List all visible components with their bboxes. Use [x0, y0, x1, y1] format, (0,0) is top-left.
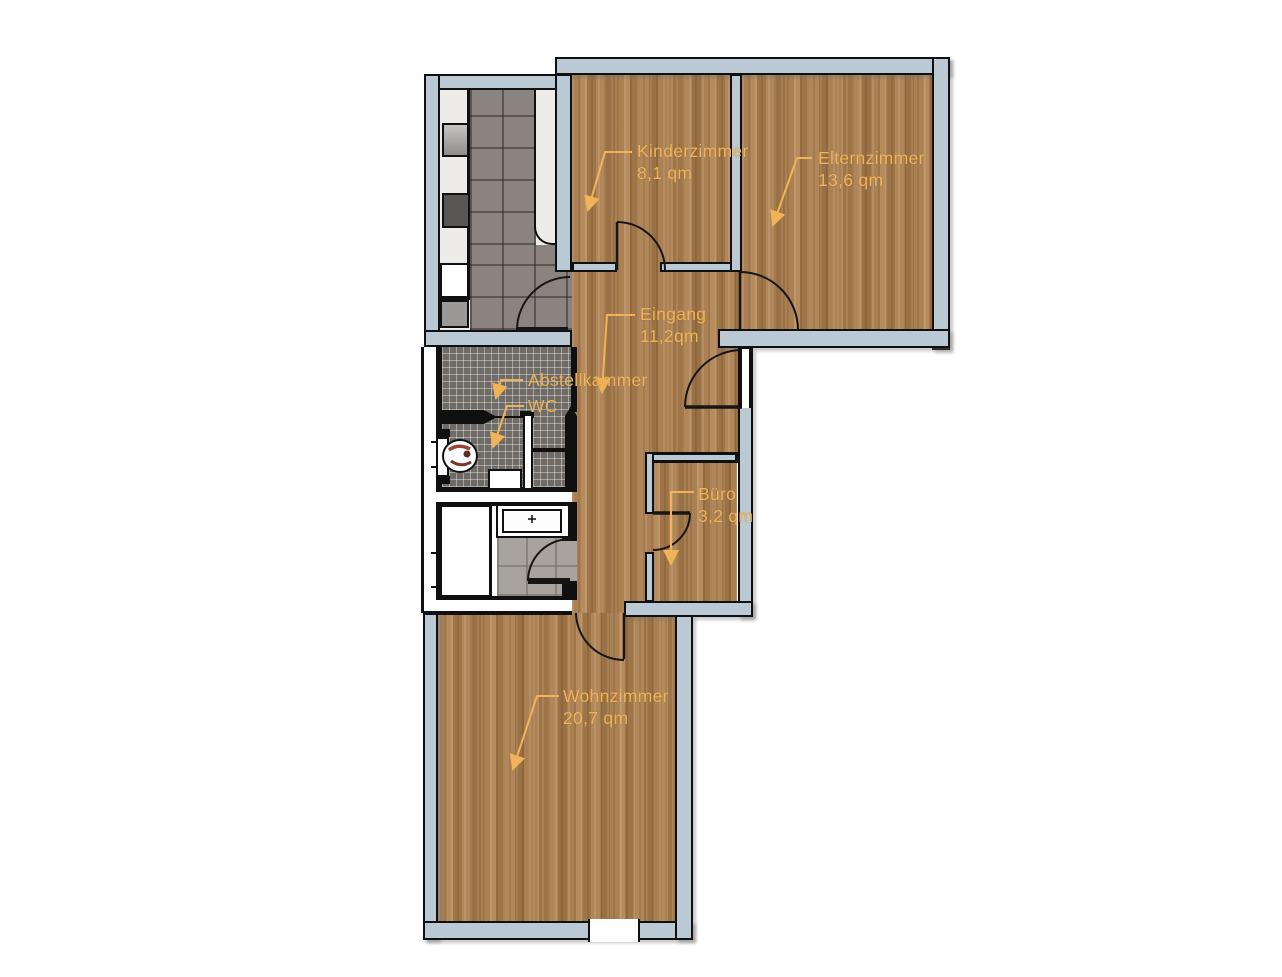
room-area: 11,2qm: [640, 325, 706, 347]
room-name: Eingang: [640, 303, 706, 325]
wall-wohnzimmer-south: [423, 921, 693, 940]
room-wohnzimmer-floor: [438, 613, 675, 922]
room-area: 8,1 qm: [637, 162, 749, 184]
wall-buero-west-lower: [645, 552, 654, 602]
room-eingang-floor-lower: [572, 453, 645, 613]
oven-icon: [442, 193, 470, 228]
wall-top-outer: [555, 57, 950, 75]
wall-kitchen-south: [424, 330, 572, 347]
stove-icon: [442, 123, 469, 157]
wall-east-elternzimmer: [932, 57, 950, 350]
wall-buero-west-upper: [645, 452, 654, 514]
wall-kitchen-west: [424, 74, 440, 347]
cistern-cap-top: [436, 429, 450, 437]
label-eingang: Eingang 11,2qm: [640, 303, 706, 347]
sink-unit-icon: [440, 263, 469, 298]
west-facade-line: [421, 347, 424, 613]
room-eingang-floor-upper: [572, 262, 742, 453]
room-name: Kinderzimmer: [637, 140, 749, 162]
wall-elternzimmer-south: [718, 329, 950, 348]
floor-plan: Kinderzimmer 8,1 qm Elternzimmer 13,6 qm…: [0, 0, 1282, 977]
room-area: 13,6 qm: [818, 169, 925, 191]
label-buero: Büro 3,2 qm: [698, 483, 753, 527]
room-name: Elternzimmer: [818, 147, 925, 169]
room-name: Wohnzimmer: [563, 685, 669, 707]
label-wohnzimmer: Wohnzimmer 20,7 qm: [563, 685, 669, 729]
cistern-cap-bottom: [436, 476, 450, 484]
kitchen-tile-floor: [470, 90, 536, 245]
room-name: Büro: [698, 483, 753, 505]
wall-wohnzimmer-east: [675, 615, 693, 940]
label-elternzimmer: Elternzimmer 13,6 qm: [818, 147, 925, 191]
wall-buero-top: [645, 452, 738, 463]
entrance-door-opening: [740, 349, 751, 408]
label-kinderzimmer: Kinderzimmer 8,1 qm: [637, 140, 749, 184]
kitchen-counter-right: [534, 90, 557, 245]
wc-door-leaf: [523, 414, 533, 490]
label-abstellkammer: Abstellkammer: [528, 369, 648, 391]
room-name: Abstellkammer: [528, 369, 648, 391]
wall-kitchen-east: [555, 74, 572, 272]
room-elternzimmer-floor: [742, 75, 932, 329]
wohnzimmer-window-opening: [588, 919, 640, 942]
wall-kitchen-top: [424, 74, 572, 90]
room-name: WC: [528, 395, 558, 417]
room-area: 20,7 qm: [563, 707, 669, 729]
appliance-icon: [440, 300, 469, 328]
wall-wohnzimmer-west: [423, 612, 438, 940]
bathtub: [439, 504, 492, 598]
label-wc: WC: [528, 395, 558, 417]
wall-kinderzimmer-south-right: [660, 262, 738, 272]
wc-cistern: [436, 437, 449, 477]
bath-sink: [502, 509, 562, 533]
abstellkammer-wc-divider: [436, 410, 484, 424]
wc-washbasin: [488, 469, 522, 490]
wc-door-swing-line: [484, 416, 524, 418]
wohnzimmer-north-line: [423, 611, 572, 615]
wall-kinderzimmer-south-left: [572, 262, 617, 272]
room-area: 3,2 qm: [698, 505, 753, 527]
wc-inner-wall: [531, 448, 568, 452]
bath-east-wall-lower: [562, 581, 577, 600]
